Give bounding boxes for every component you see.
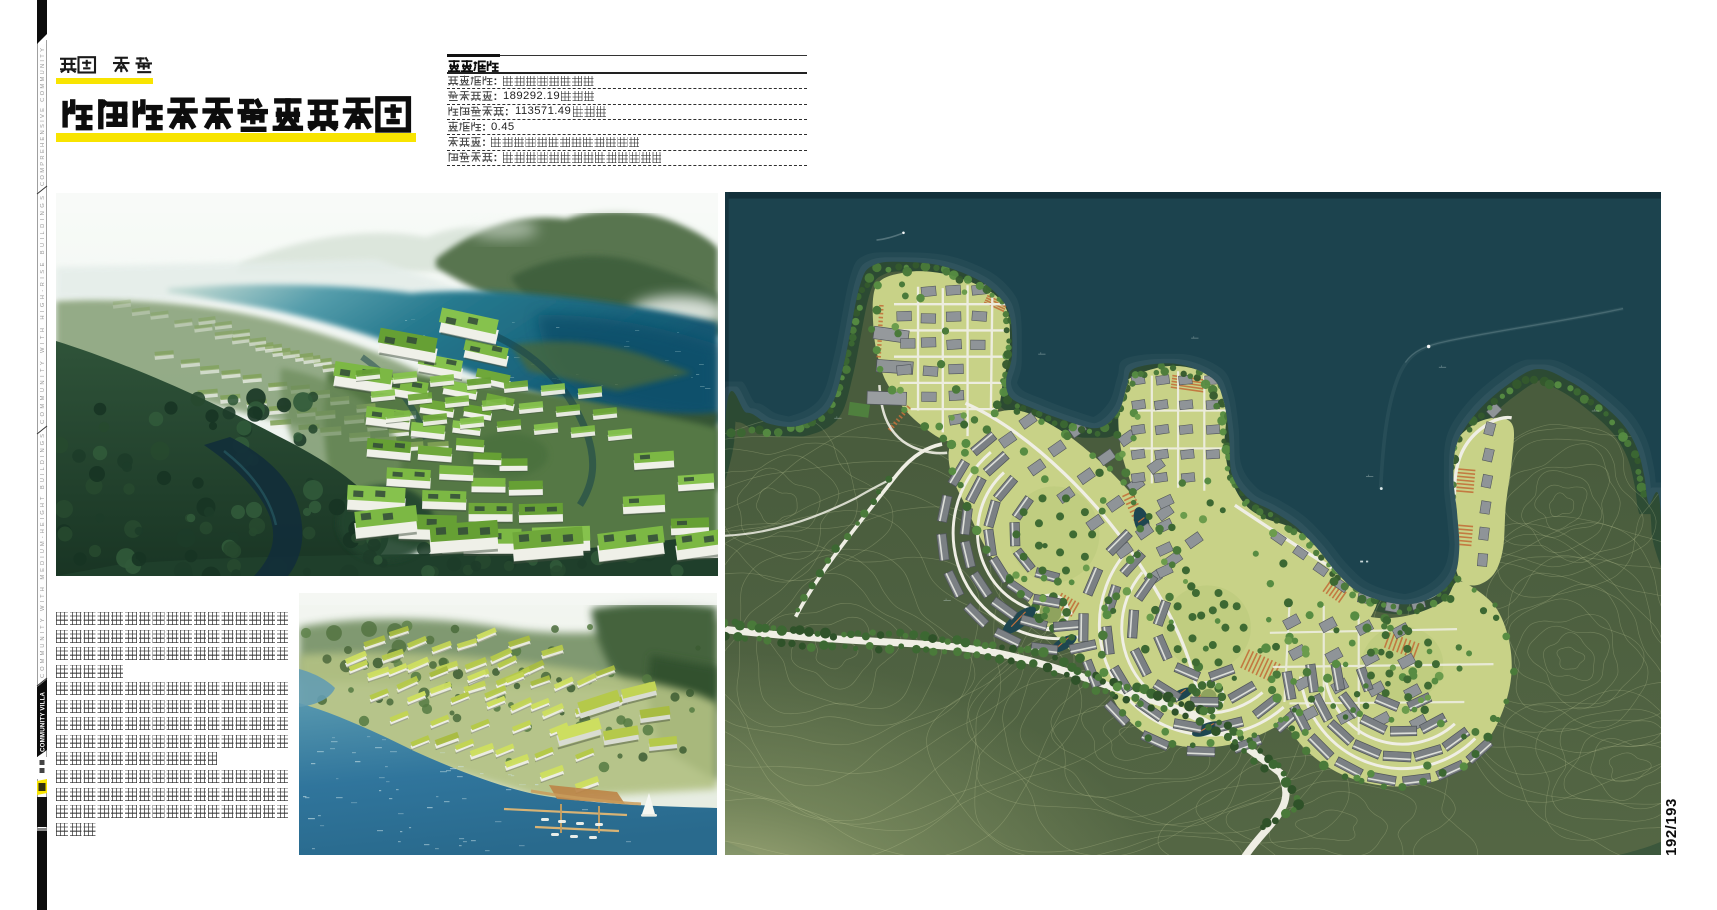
svg-text:COMPREHENSIVE COMMUNITY: COMPREHENSIVE COMMUNITY: [40, 48, 46, 186]
svg-text:COMMUNITY VILLA: COMMUNITY VILLA: [40, 691, 47, 752]
